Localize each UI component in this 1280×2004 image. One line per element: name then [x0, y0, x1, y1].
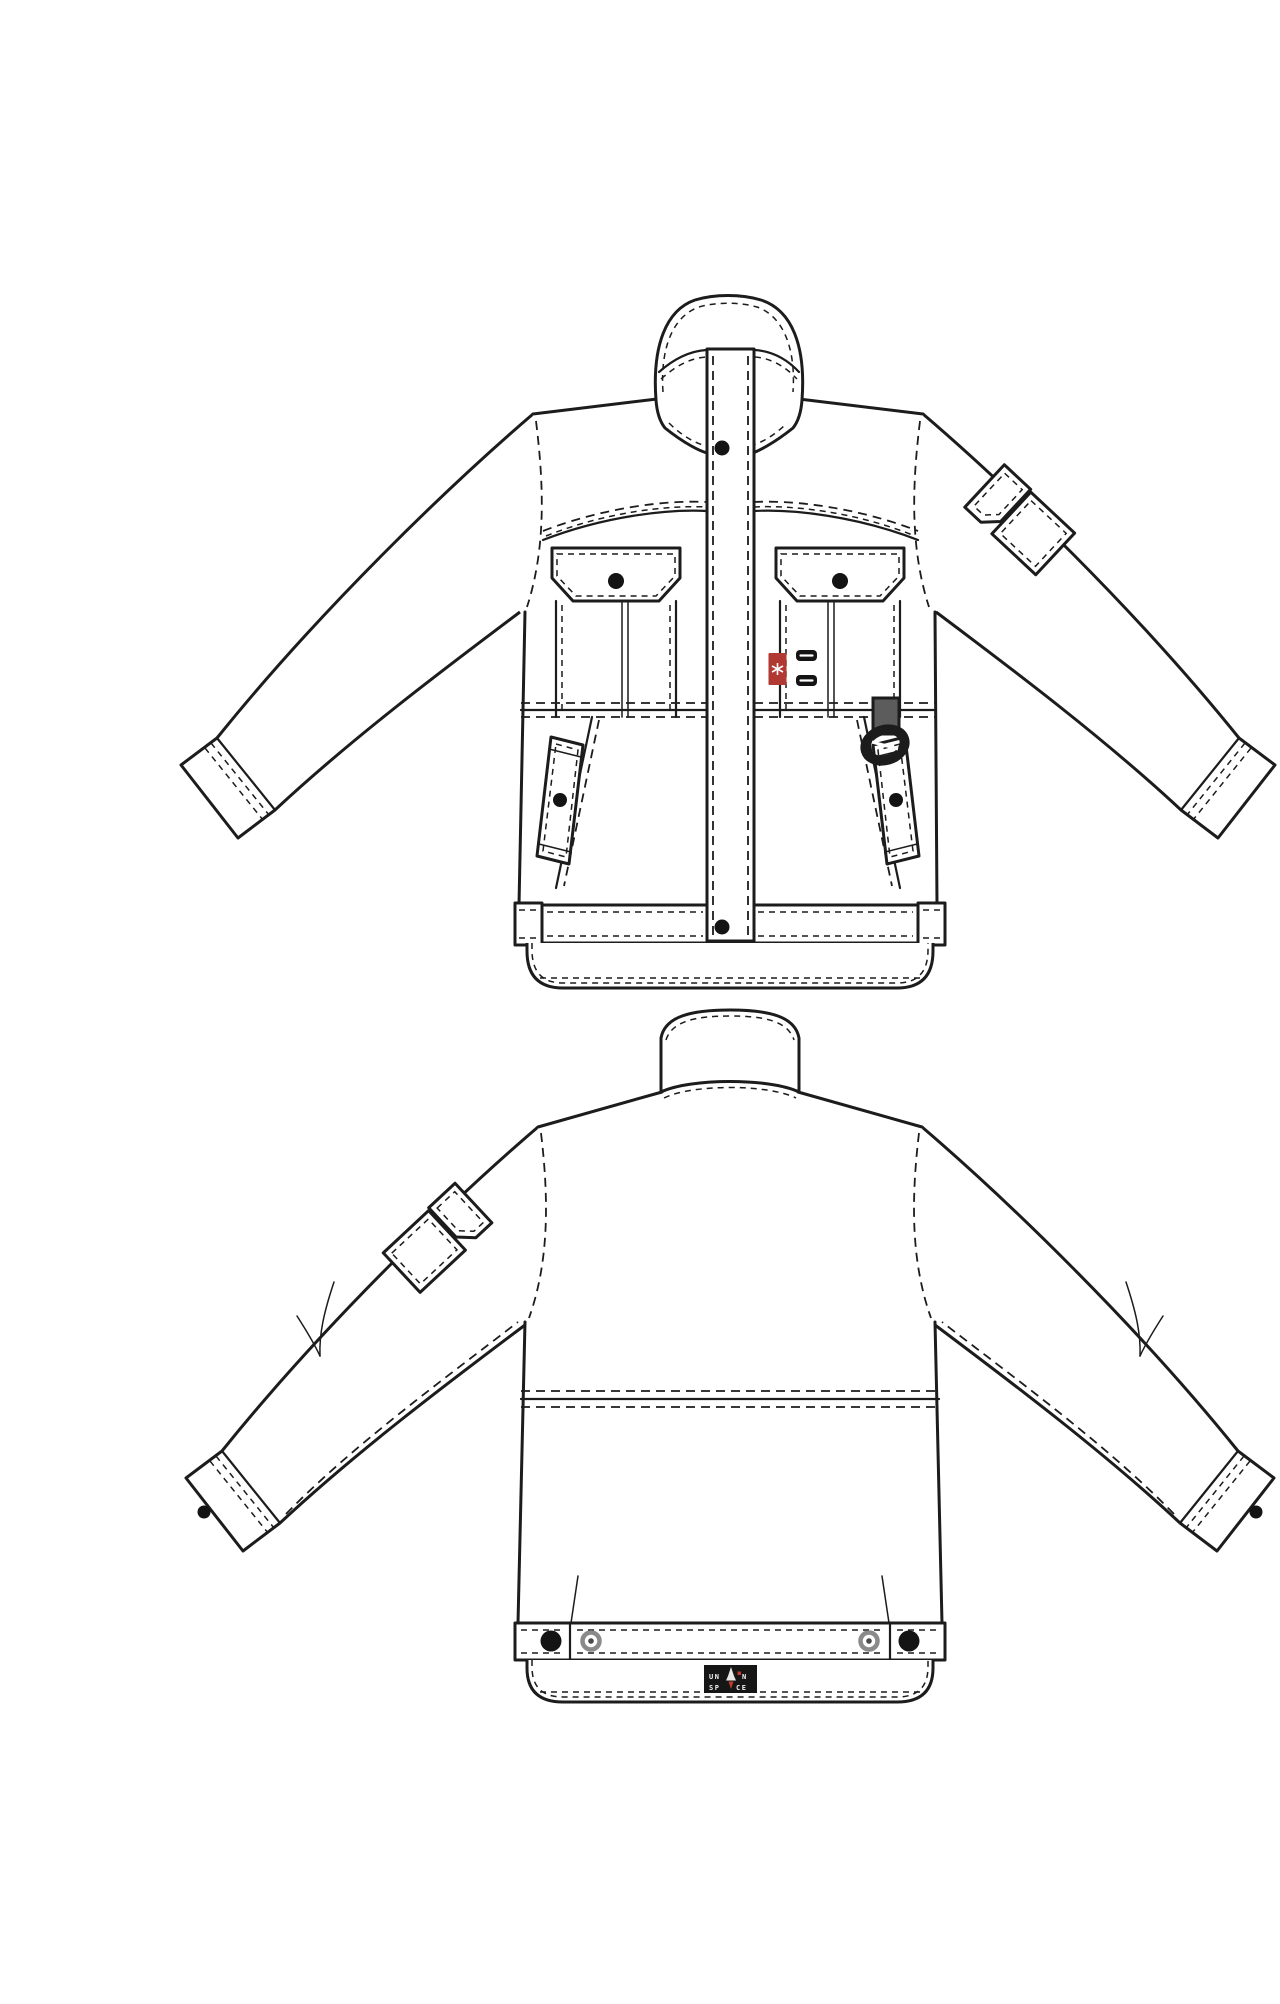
front-left-sleeve [181, 414, 533, 838]
jacket-back-view: UN N SP CE [186, 1010, 1274, 1702]
band-snap-button [899, 1631, 920, 1652]
back-left-sleeve [186, 1127, 538, 1551]
cuff-snap-button [1250, 1506, 1263, 1519]
snap-button [608, 573, 624, 589]
brand-label-line2-right: CE [736, 1684, 747, 1692]
right-shoulder-seam [798, 1092, 922, 1127]
snap-button [832, 573, 848, 589]
cuff-snap-button [198, 1506, 211, 1519]
center-front-placket [707, 349, 754, 941]
left-shoulder-seam [538, 1092, 662, 1127]
band-tab [918, 903, 945, 945]
right-side-seam [935, 612, 937, 905]
back-stand-collar [661, 1010, 799, 1098]
brand-label-line1-left: UN [709, 1673, 720, 1681]
right-shoulder-seam [799, 399, 923, 414]
back-body-panel [518, 1127, 942, 1623]
rivet [553, 793, 567, 807]
brand-label-line1-right: N [742, 1673, 748, 1681]
left-shoulder-seam [533, 399, 657, 414]
front-hem-skirt [527, 943, 933, 988]
brand-label: UN N SP CE [704, 1665, 757, 1693]
front-right-sleeve [923, 414, 1275, 838]
brand-label-line2-left: SP [709, 1684, 720, 1692]
technical-flat-canvas: UN N SP CE [0, 0, 1280, 2004]
back-right-sleeve [922, 1127, 1274, 1551]
back-waistband [515, 1623, 945, 1660]
rivet [889, 793, 903, 807]
band-snap-button [541, 1631, 562, 1652]
collar-snap-button [715, 441, 730, 456]
hem-snap-button [715, 920, 730, 935]
jacket-front-view [181, 296, 1275, 989]
jacket-flat-drawing: UN N SP CE [0, 0, 1280, 2004]
